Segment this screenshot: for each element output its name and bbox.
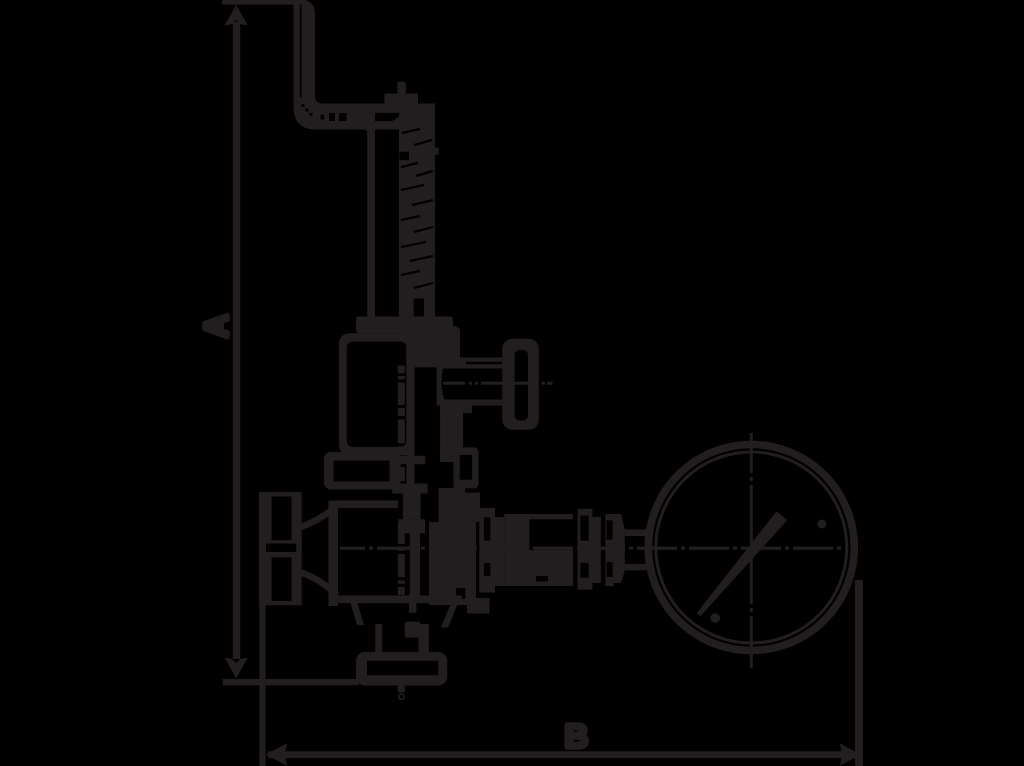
svg-text:A: A	[197, 314, 234, 338]
svg-text:B: B	[565, 718, 589, 755]
